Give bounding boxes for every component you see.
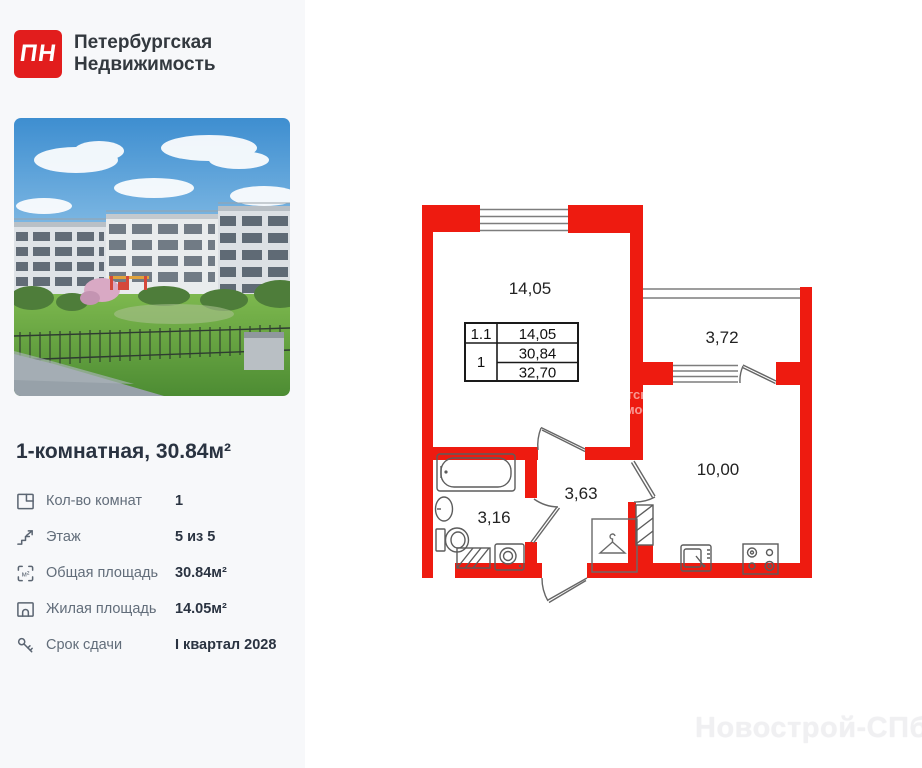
table-rooms-count: 1 bbox=[477, 354, 485, 371]
sidebar: ПН Петербургская Недвижимость bbox=[0, 0, 305, 768]
table-unit-number: 1.1 bbox=[471, 326, 492, 343]
svg-text:м²: м² bbox=[22, 569, 30, 578]
spec-row-rooms: Кол-во комнат 1 bbox=[16, 488, 291, 514]
brand-mark-letters: ПН bbox=[18, 40, 59, 68]
living-area-icon bbox=[16, 599, 36, 619]
brand-mark-icon: ПН bbox=[14, 30, 62, 78]
watermark-text: Новострой-СПб bbox=[695, 712, 915, 745]
vent-shaft-hatch bbox=[636, 505, 653, 545]
living-room-area-label: 14,05 bbox=[509, 279, 552, 298]
total-area-icon: м² bbox=[16, 563, 36, 583]
floor-icon bbox=[16, 527, 36, 547]
spec-value: 1 bbox=[175, 493, 291, 509]
spec-value: 14.05м² bbox=[175, 601, 291, 617]
spec-list: Кол-во комнат 1 Этаж 5 из 5 м² Общая пло… bbox=[16, 488, 291, 668]
spec-value: I квартал 2028 bbox=[175, 637, 291, 653]
spec-label: Кол-во комнат bbox=[46, 493, 175, 509]
key-icon bbox=[16, 635, 36, 655]
plan-brand-watermark: Петербургская Недвижимость bbox=[533, 386, 664, 417]
brand-name-line1: Петербургская bbox=[74, 32, 216, 54]
spec-value: 30.84м² bbox=[175, 565, 291, 581]
brand-logo[interactable]: ПН Петербургская Недвижимость bbox=[14, 30, 216, 78]
table-living-area: 14,05 bbox=[519, 326, 557, 343]
spec-label: Срок сдачи bbox=[46, 637, 175, 653]
svg-text:Петербургская: Петербургская bbox=[567, 387, 662, 402]
plan-info-table: 1.1 14,05 1 30,84 32,70 bbox=[465, 323, 578, 382]
spec-label: Общая площадь bbox=[46, 565, 175, 581]
spec-row-living-area: Жилая площадь 14.05м² bbox=[16, 596, 291, 622]
listing-title: 1-комнатная, 30.84м² bbox=[16, 440, 231, 464]
rooms-icon bbox=[16, 491, 36, 511]
spec-row-floor: Этаж 5 из 5 bbox=[16, 524, 291, 550]
floorplan-area: 1.1 14,05 1 30,84 32,70 14,05 3,72 10,00… bbox=[305, 0, 922, 768]
sink-icon bbox=[436, 497, 453, 521]
hallway-area-label: 3,63 bbox=[564, 484, 597, 503]
table-area-main: 30,84 bbox=[519, 346, 557, 363]
svg-text:Недвижимость: Недвижимость bbox=[567, 402, 664, 417]
kitchen-area-label: 10,00 bbox=[697, 460, 740, 479]
building-photo-render bbox=[14, 118, 290, 396]
spec-row-completion: Срок сдачи I квартал 2028 bbox=[16, 632, 291, 658]
spec-label: Этаж bbox=[46, 529, 175, 545]
table-area-total: 32,70 bbox=[519, 365, 557, 382]
floorplan-drawing: 1.1 14,05 1 30,84 32,70 14,05 3,72 10,00… bbox=[400, 185, 830, 605]
spec-row-total-area: м² Общая площадь 30.84м² bbox=[16, 560, 291, 586]
spec-value: 5 из 5 bbox=[175, 529, 291, 545]
building-photo[interactable] bbox=[14, 118, 290, 396]
brand-name-line2: Недвижимость bbox=[74, 54, 216, 76]
brand-name: Петербургская Недвижимость bbox=[74, 32, 216, 76]
spec-label: Жилая площадь bbox=[46, 601, 175, 617]
bathroom-area-label: 3,16 bbox=[477, 508, 510, 527]
balcony-area-label: 3,72 bbox=[705, 328, 738, 347]
